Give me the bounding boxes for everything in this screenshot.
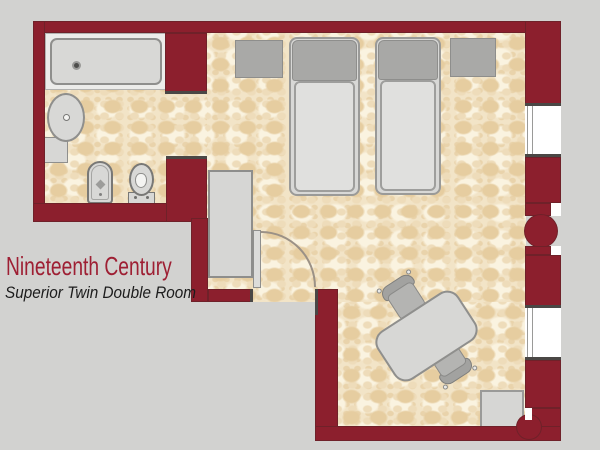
wardrobe — [208, 170, 253, 278]
toilet-bowl-inner — [135, 173, 147, 188]
plan-subtitle: Superior Twin Double Room — [5, 283, 196, 303]
wall-right-d — [525, 360, 561, 408]
column-detail-1 — [524, 214, 558, 248]
bathtub-drain-icon — [72, 61, 81, 70]
nightstand-right — [450, 38, 496, 77]
floor-plan: Nineteenth Century Superior Twin Double … — [0, 0, 600, 450]
window-frame-line — [532, 308, 533, 357]
bed-pillow — [292, 40, 357, 81]
window-frame-line — [527, 308, 528, 357]
wall-end-cap — [165, 91, 207, 94]
bidet-drain-icon — [99, 193, 102, 196]
twin-bed-2 — [375, 37, 441, 195]
wall-divider-lower — [166, 156, 207, 222]
wall-right-b — [525, 157, 561, 203]
window-reveal-cap — [525, 357, 561, 360]
column-notch — [551, 246, 561, 255]
plan-title: Nineteenth Century — [6, 251, 172, 282]
wall-end-cap — [166, 156, 207, 159]
toilet-bolt-icon — [146, 196, 149, 199]
window-reveal-cap — [525, 154, 561, 157]
bed-mattress — [294, 81, 355, 192]
wall-right-a — [525, 21, 561, 106]
window-2 — [525, 308, 561, 357]
bidet — [87, 161, 113, 204]
wall-lower-left — [315, 289, 338, 441]
window-frame-line — [532, 106, 533, 154]
wall-divider-upper — [165, 33, 207, 94]
column-notch — [551, 203, 561, 216]
wall-right-c — [525, 255, 561, 308]
bed-mattress — [380, 80, 436, 191]
basin-drain-icon — [63, 114, 70, 121]
wall-column-neck — [525, 246, 551, 255]
nightstand-left — [235, 40, 283, 78]
corner-notch — [525, 408, 532, 420]
bed-pillow — [378, 40, 438, 80]
door-jamb-cap — [315, 289, 318, 315]
twin-bed-1 — [289, 37, 360, 196]
wall-top — [33, 21, 561, 33]
toilet-bolt-icon — [134, 196, 137, 199]
wall-door-stub — [208, 289, 253, 302]
bathtub — [50, 38, 162, 85]
door-leaf — [253, 230, 261, 288]
door-jamb-cap — [250, 289, 253, 302]
window-frame-line — [527, 106, 528, 154]
window-1 — [525, 106, 561, 154]
wall-left — [33, 21, 45, 222]
